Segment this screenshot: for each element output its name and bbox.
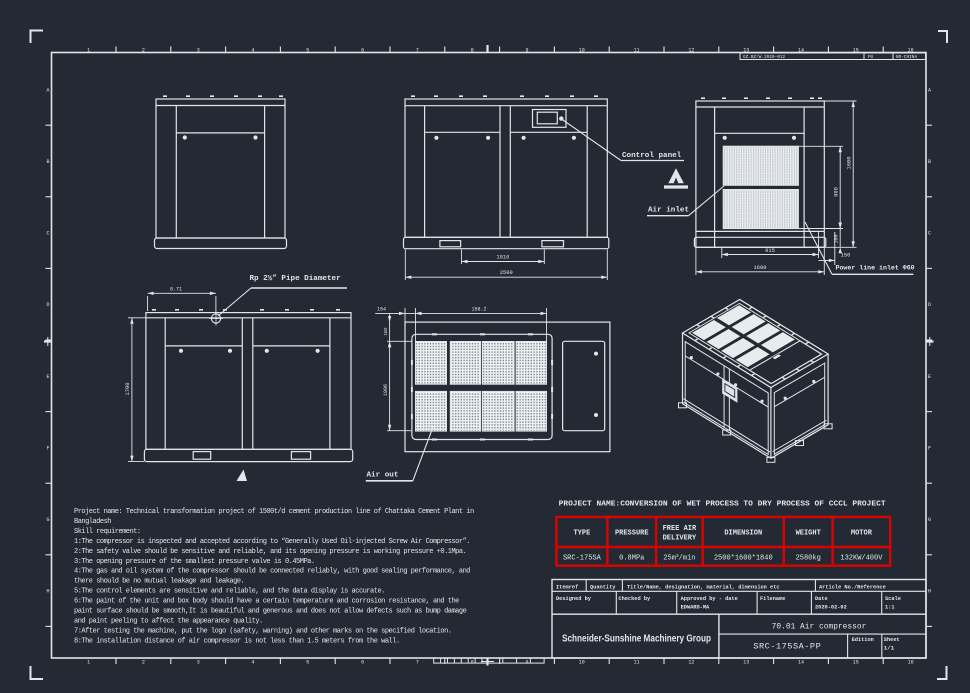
svg-text:2020-02-02: 2020-02-02 bbox=[815, 605, 847, 611]
svg-text:2:The safety valve should be s: 2:The safety valve should be sensitive a… bbox=[74, 548, 466, 556]
svg-text:150: 150 bbox=[841, 253, 851, 259]
svg-text:1600: 1600 bbox=[754, 265, 767, 271]
svg-text:GZ.BZ/W.2020-012: GZ.BZ/W.2020-012 bbox=[743, 55, 786, 60]
svg-text:4: 4 bbox=[251, 660, 254, 666]
svg-text:Filename: Filename bbox=[760, 596, 785, 602]
svg-text:14: 14 bbox=[798, 660, 804, 666]
svg-text:A: A bbox=[46, 87, 49, 93]
svg-text:D: D bbox=[46, 302, 49, 308]
svg-text:1:1: 1:1 bbox=[885, 605, 895, 611]
svg-text:PU: PU bbox=[868, 55, 874, 60]
svg-text:7: 7 bbox=[416, 660, 419, 666]
svg-text:H: H bbox=[928, 589, 931, 595]
svg-text:15: 15 bbox=[853, 660, 859, 666]
svg-text:C: C bbox=[46, 231, 49, 237]
svg-text:13: 13 bbox=[743, 660, 749, 666]
svg-text:6: 6 bbox=[361, 660, 364, 666]
svg-text:Rp 2½” Pipe Diameter: Rp 2½” Pipe Diameter bbox=[250, 275, 342, 283]
svg-text:SRC-175SA-PP: SRC-175SA-PP bbox=[753, 642, 821, 652]
svg-text:Quantity: Quantity bbox=[590, 584, 616, 590]
svg-text:DELIVERY: DELIVERY bbox=[663, 535, 697, 543]
svg-text:9: 9 bbox=[525, 48, 528, 54]
svg-text:11: 11 bbox=[634, 48, 640, 54]
svg-text:70.01 Air compressor: 70.01 Air compressor bbox=[772, 623, 867, 632]
svg-text:FREE AIR: FREE AIR bbox=[663, 525, 697, 533]
svg-text:132KW/400V: 132KW/400V bbox=[840, 555, 883, 563]
svg-text:5:The control elements are sen: 5:The control elements are sensitive and… bbox=[74, 588, 385, 596]
svg-text:1006: 1006 bbox=[383, 384, 389, 396]
svg-text:1700: 1700 bbox=[125, 383, 131, 396]
svg-text:paint surface should be smooth: paint surface should be smooth,It is bea… bbox=[74, 608, 467, 616]
svg-text:A: A bbox=[928, 87, 931, 93]
svg-text:Checked by: Checked by bbox=[618, 596, 651, 602]
svg-text:9: 9 bbox=[525, 660, 528, 666]
svg-text:2500*1600*1840: 2500*1600*1840 bbox=[714, 555, 773, 563]
svg-text:1010: 1010 bbox=[496, 255, 509, 261]
svg-text:Edition: Edition bbox=[852, 637, 874, 643]
svg-text:Power line inlet Φ60: Power line inlet Φ60 bbox=[836, 264, 915, 271]
svg-text:1/1: 1/1 bbox=[884, 644, 895, 651]
svg-text:Date: Date bbox=[815, 596, 828, 602]
svg-text:Approved by - date: Approved by - date bbox=[681, 596, 738, 602]
svg-text:158.2: 158.2 bbox=[471, 306, 486, 312]
svg-text:WEIGHT: WEIGHT bbox=[796, 530, 821, 538]
svg-text:5: 5 bbox=[306, 660, 309, 666]
svg-text:Project name: Technical transf: Project name: Technical transformation p… bbox=[74, 508, 474, 516]
svg-text:Designed by: Designed by bbox=[556, 596, 592, 602]
svg-text:DIMENSION: DIMENSION bbox=[724, 530, 762, 538]
svg-text:16: 16 bbox=[908, 660, 914, 666]
svg-text:2580kg: 2580kg bbox=[796, 555, 821, 563]
svg-text:PRESSURE: PRESSURE bbox=[615, 530, 649, 538]
svg-text:102: 102 bbox=[383, 327, 389, 336]
svg-text:3: 3 bbox=[197, 48, 200, 54]
svg-text:4:The gas and oil system of th: 4:The gas and oil system of the compress… bbox=[74, 568, 470, 576]
svg-text:G: G bbox=[928, 517, 931, 523]
svg-text:1:The compressor is inspected: 1:The compressor is inspected and accept… bbox=[74, 538, 470, 546]
svg-text:and paint peeling to affect th: and paint peeling to affect the appearan… bbox=[74, 617, 263, 625]
svg-text:11: 11 bbox=[634, 660, 640, 666]
svg-text:H: H bbox=[46, 589, 49, 595]
svg-text:Article No./Reference: Article No./Reference bbox=[819, 584, 886, 590]
svg-text:PROJECT NAME:CONVERSION OF WET: PROJECT NAME:CONVERSION OF WET PROCESS T… bbox=[559, 501, 886, 509]
svg-text:6: 6 bbox=[361, 48, 364, 54]
svg-text:8: 8 bbox=[471, 660, 474, 666]
svg-text:Air inlet: Air inlet bbox=[648, 207, 689, 215]
svg-text:Skill requirement:: Skill requirement: bbox=[74, 528, 141, 536]
svg-text:D: D bbox=[928, 302, 931, 308]
svg-text:1: 1 bbox=[87, 48, 90, 54]
svg-text:12: 12 bbox=[688, 660, 694, 666]
svg-text:Title/Name, designation, mater: Title/Name, designation, material, dimen… bbox=[627, 584, 780, 590]
svg-text:G: G bbox=[46, 517, 49, 523]
svg-text:Bangladesh: Bangladesh bbox=[74, 518, 111, 526]
svg-text:154: 154 bbox=[377, 306, 386, 312]
svg-text:3: 3 bbox=[197, 660, 200, 666]
svg-text:1: 1 bbox=[87, 660, 90, 666]
svg-text:7: 7 bbox=[416, 48, 419, 54]
svg-text:Itemref: Itemref bbox=[556, 584, 578, 590]
svg-text:6:The paint of the unit and bo: 6:The paint of the unit and box body sho… bbox=[74, 598, 459, 606]
svg-text:10: 10 bbox=[579, 660, 585, 666]
svg-text:8: 8 bbox=[471, 48, 474, 54]
svg-text:E: E bbox=[46, 374, 49, 380]
svg-text:2: 2 bbox=[142, 660, 145, 666]
svg-text:Control panel: Control panel bbox=[622, 152, 682, 160]
svg-text:B: B bbox=[46, 159, 49, 165]
svg-text:915: 915 bbox=[765, 248, 775, 254]
svg-text:B: B bbox=[928, 159, 931, 165]
svg-text:25m3/min: 25m3/min bbox=[663, 553, 695, 563]
svg-text:Schneider-Sunshine Machinery G: Schneider-Sunshine Machinery Group bbox=[562, 634, 711, 645]
svg-text:NO-CHINA: NO-CHINA bbox=[896, 55, 917, 60]
svg-text:EDWARD-MA: EDWARD-MA bbox=[681, 605, 710, 611]
svg-text:1600: 1600 bbox=[847, 157, 853, 170]
svg-text:7:After testing the machine, p: 7:After testing the machine, put the log… bbox=[74, 627, 451, 635]
svg-text:MOTOR: MOTOR bbox=[851, 530, 873, 538]
svg-text:E: E bbox=[928, 374, 931, 380]
svg-text:3:The opening pressure of the: 3:The opening pressure of the smallest p… bbox=[74, 558, 315, 566]
svg-text:2: 2 bbox=[142, 48, 145, 54]
svg-text:Scale: Scale bbox=[885, 596, 901, 602]
svg-text:5: 5 bbox=[306, 48, 309, 54]
svg-text:Sheet: Sheet bbox=[884, 637, 900, 643]
svg-text:2500: 2500 bbox=[500, 270, 513, 276]
svg-text:there should be no mutual leak: there should be no mutual leakage and le… bbox=[74, 578, 244, 586]
svg-text:0.8MPa: 0.8MPa bbox=[619, 555, 644, 563]
svg-text:F: F bbox=[928, 445, 931, 451]
svg-text:TYPE: TYPE bbox=[573, 530, 590, 538]
svg-text:SRC-175SA: SRC-175SA bbox=[563, 555, 602, 563]
svg-text:Air out: Air out bbox=[367, 472, 399, 480]
svg-text:C: C bbox=[928, 231, 931, 237]
svg-text:4: 4 bbox=[251, 48, 254, 54]
svg-text:10: 10 bbox=[579, 48, 585, 54]
svg-text:8:The installation distance of: 8:The installation distance of air compr… bbox=[74, 637, 400, 645]
svg-text:F: F bbox=[46, 445, 49, 451]
svg-text:8.71: 8.71 bbox=[170, 286, 182, 292]
svg-text:900: 900 bbox=[834, 187, 840, 197]
svg-text:12: 12 bbox=[688, 48, 694, 54]
